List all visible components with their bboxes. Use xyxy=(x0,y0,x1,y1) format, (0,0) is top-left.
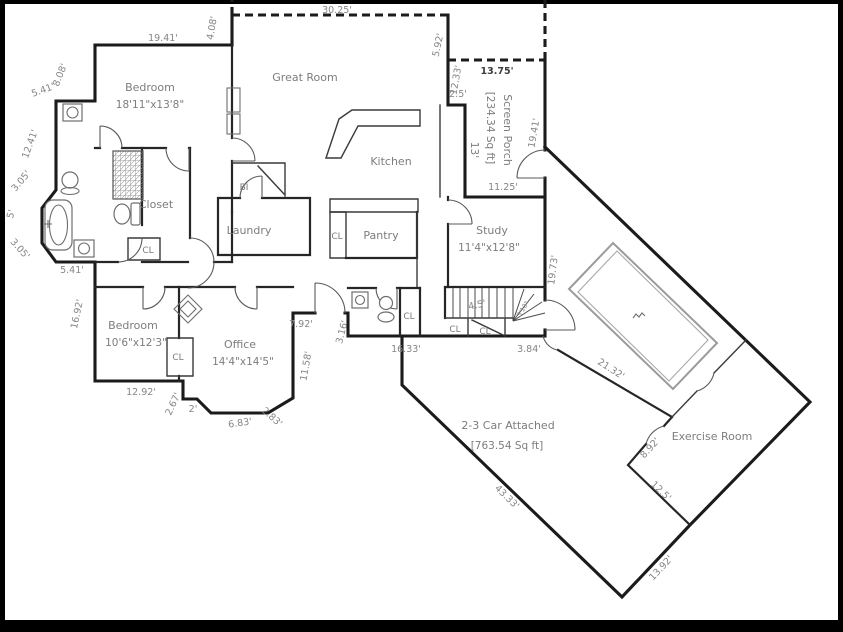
dim-label: 2' xyxy=(189,404,198,415)
room-size-bedroom2: 10'6"x12'3" xyxy=(105,337,167,349)
dim-label: 5' xyxy=(5,209,18,220)
dim-label: 19.73' xyxy=(546,255,561,286)
closet-label: CL xyxy=(449,325,460,335)
dim-label: 5.41' xyxy=(30,81,56,99)
dim-label: 21.32' xyxy=(595,357,626,382)
dim-label: 4.5' xyxy=(467,298,487,312)
dim-label: 13.75' xyxy=(481,66,514,77)
pool-table xyxy=(569,243,717,389)
room-label-great-room: Great Room xyxy=(272,71,337,84)
dim-label: 2.67' xyxy=(163,391,183,417)
dim-label: 3.05' xyxy=(10,169,34,194)
vanity-sink-icon xyxy=(74,240,94,257)
dim-label: 11.58' xyxy=(298,350,314,381)
room-width-screen-porch: 13' xyxy=(468,142,480,158)
dim-label: 30.25' xyxy=(322,5,352,16)
pedestal-sink-icon xyxy=(61,172,79,195)
great-room-windows xyxy=(227,88,240,134)
staircase xyxy=(453,288,545,321)
dim-label: 12.92' xyxy=(126,387,156,398)
kitchen-counter xyxy=(326,110,420,158)
dim-label: 8.08' xyxy=(51,62,70,88)
room-label-closet: Closet xyxy=(139,198,174,211)
dim-label: 19.41' xyxy=(148,33,178,44)
floor-plan-page: Bedroom 18'11"x13'8" Great Room Kitchen … xyxy=(0,0,843,632)
room-label-study: Study xyxy=(476,224,508,237)
room-label-pantry: Pantry xyxy=(363,229,399,242)
dim-label: 2.5' xyxy=(449,89,467,100)
room-label-garage: 2-3 Car Attached xyxy=(461,419,554,432)
dim-label: 13.92' xyxy=(647,554,675,583)
dim-label: 3.84' xyxy=(517,344,541,355)
room-label-exercise: Exercise Room xyxy=(672,430,753,443)
dim-label: 6.83' xyxy=(228,416,253,430)
closet-label: CL xyxy=(331,232,342,242)
room-area-screen-porch: [234.34 Sq ft] xyxy=(484,92,496,165)
water-squiggle-icon xyxy=(633,313,645,318)
dim-label: 8.92' xyxy=(638,436,662,461)
powder-sink-icon xyxy=(352,292,368,308)
dim-label: 12.5' xyxy=(648,479,673,503)
room-label-office: Office xyxy=(224,338,256,351)
deck-dashed-walls xyxy=(232,0,545,60)
powder-toilet-icon xyxy=(378,297,394,323)
closet-label: CL xyxy=(403,312,414,322)
room-label-kitchen: Kitchen xyxy=(370,155,411,168)
dim-label: 16.92' xyxy=(69,298,86,329)
door-arcs xyxy=(100,126,714,444)
room-label-bedroom-master: Bedroom xyxy=(125,81,175,94)
floor-plan-canvas: Bedroom 18'11"x13'8" Great Room Kitchen … xyxy=(0,0,843,632)
dim-label: 3'10" xyxy=(515,300,531,319)
room-label-bedroom2: Bedroom xyxy=(108,319,158,332)
dim-label: 11.25' xyxy=(488,182,518,193)
dim-label: 2.83' xyxy=(259,405,284,429)
room-area-garage: [763.54 Sq ft] xyxy=(471,440,544,452)
dim-label: 3.05' xyxy=(8,237,32,262)
room-size-office: 14'4"x14'5" xyxy=(212,356,274,368)
closet-labels: CL CL CL CL CL CL xyxy=(142,232,490,363)
dim-label: 7.92' xyxy=(289,319,313,330)
dim-label: 4.08' xyxy=(205,15,220,40)
dim-label: 5.92' xyxy=(431,32,447,58)
room-label-laundry: Laundry xyxy=(227,224,272,237)
room-size-study: 11'4"x12'8" xyxy=(458,242,520,254)
shower-icon xyxy=(113,151,143,199)
dim-label: 5.41' xyxy=(60,265,84,276)
closet-label: CL xyxy=(479,327,490,337)
dim-label: 12.41' xyxy=(20,128,41,160)
dim-label: 19.41' xyxy=(526,117,542,148)
dim-label: 16.33' xyxy=(391,344,421,355)
closet-label: CL xyxy=(142,246,153,256)
room-labels: Bedroom 18'11"x13'8" Great Room Kitchen … xyxy=(105,71,752,452)
bathtub-icon xyxy=(44,200,72,250)
room-size-bedroom-master: 18'11"x13'8" xyxy=(116,99,184,111)
vanity-sink-icon xyxy=(63,104,82,121)
toilet-icon xyxy=(114,203,140,225)
room-label-screen-porch: Screen Porch xyxy=(501,94,514,166)
room-label-built-in: BI xyxy=(240,183,249,193)
closet-label: CL xyxy=(172,353,183,363)
